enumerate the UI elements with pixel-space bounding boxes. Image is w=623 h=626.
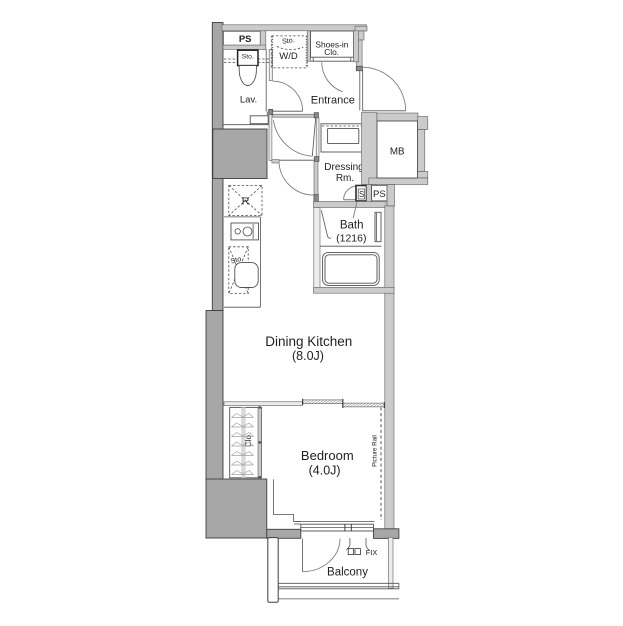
svg-text:FIX: FIX bbox=[366, 548, 378, 557]
svg-text:(1216): (1216) bbox=[336, 232, 366, 244]
svg-text:W/D: W/D bbox=[279, 51, 298, 62]
svg-text:Rm.: Rm. bbox=[336, 173, 354, 184]
svg-text:Dressing: Dressing bbox=[324, 162, 363, 173]
svg-text:MB: MB bbox=[390, 147, 405, 158]
svg-text:Bedroom: Bedroom bbox=[301, 448, 354, 463]
svg-text:Clo.: Clo. bbox=[324, 47, 339, 57]
svg-text:(4.0J): (4.0J) bbox=[309, 464, 341, 478]
svg-text:Dining Kitchen: Dining Kitchen bbox=[265, 334, 352, 349]
svg-text:PS: PS bbox=[373, 189, 386, 200]
svg-text:R: R bbox=[242, 196, 250, 208]
svg-text:S: S bbox=[359, 190, 364, 199]
svg-text:Sto.: Sto. bbox=[242, 54, 254, 61]
svg-text:Lav.: Lav. bbox=[240, 95, 257, 106]
svg-text:PS: PS bbox=[239, 34, 252, 45]
svg-text:Sto.: Sto. bbox=[281, 35, 295, 46]
svg-text:Picture Rail: Picture Rail bbox=[371, 435, 378, 467]
svg-text:Bath: Bath bbox=[340, 220, 364, 232]
svg-text:Balcony: Balcony bbox=[327, 567, 368, 579]
svg-text:Entrance: Entrance bbox=[311, 94, 355, 106]
svg-text:(8.0J): (8.0J) bbox=[292, 349, 324, 363]
